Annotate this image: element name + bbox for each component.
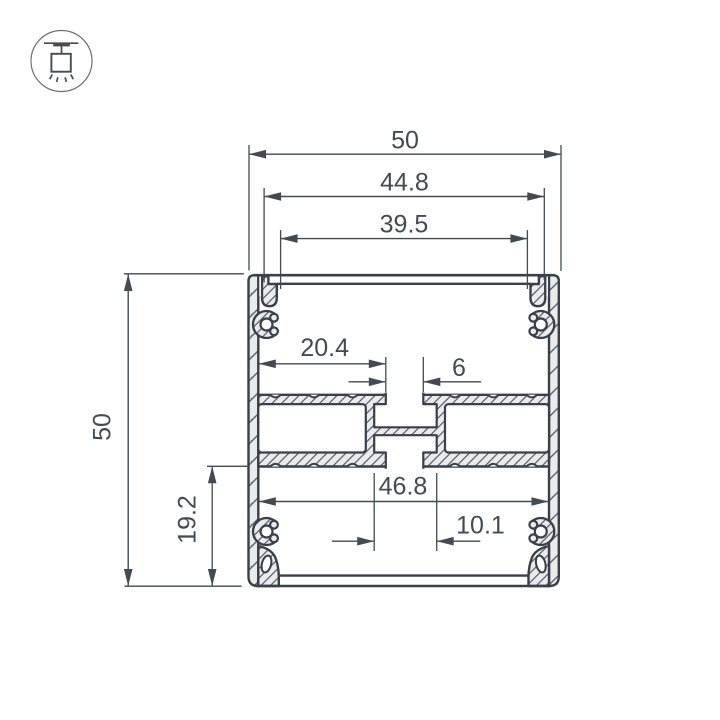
- svg-text:46.8: 46.8: [379, 473, 428, 501]
- svg-text:10.1: 10.1: [456, 512, 505, 540]
- svg-text:6: 6: [452, 354, 466, 382]
- svg-text:50: 50: [391, 127, 419, 155]
- svg-text:39.5: 39.5: [380, 211, 429, 239]
- svg-text:19.2: 19.2: [173, 495, 201, 544]
- svg-text:44.8: 44.8: [380, 169, 429, 197]
- svg-text:20.4: 20.4: [300, 334, 349, 362]
- svg-text:50: 50: [89, 413, 117, 441]
